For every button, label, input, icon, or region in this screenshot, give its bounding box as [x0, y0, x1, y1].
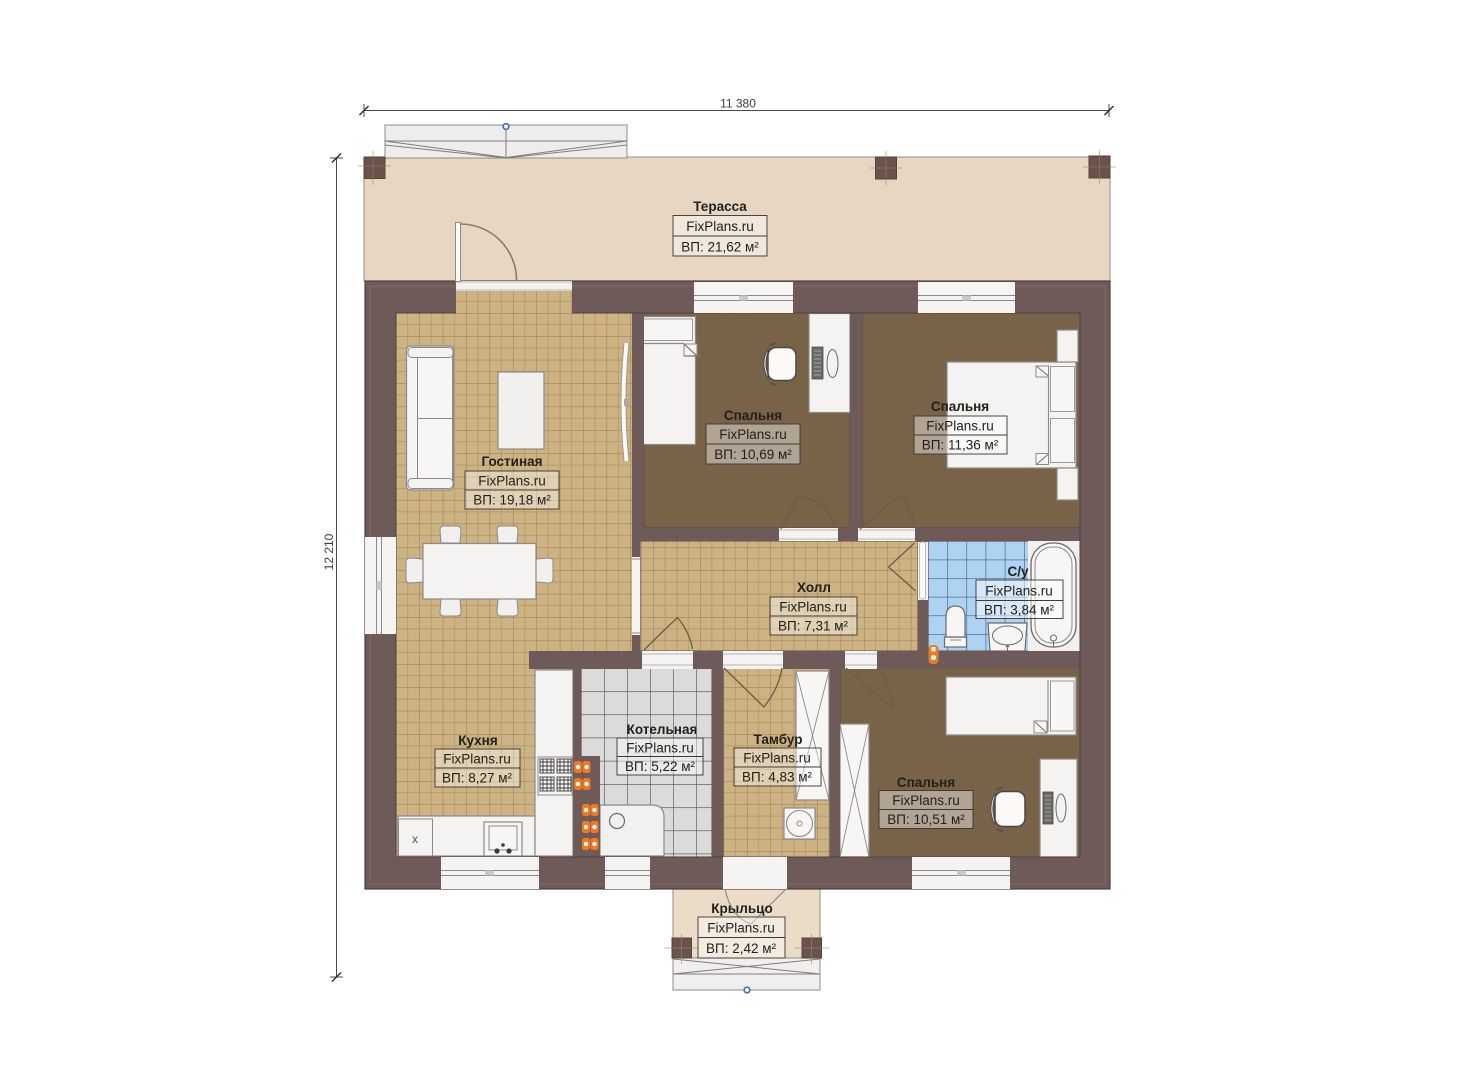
svg-text:ВП: 10,69 м²: ВП: 10,69 м²: [714, 447, 792, 462]
svg-text:Кухня: Кухня: [458, 733, 497, 748]
svg-text:Спальня: Спальня: [931, 399, 989, 414]
svg-text:FixPlans.ru: FixPlans.ru: [926, 419, 994, 434]
svg-text:11 380: 11 380: [720, 97, 756, 111]
svg-text:FixPlans.ru: FixPlans.ru: [686, 219, 754, 234]
svg-text:ВП: 11,36 м²: ВП: 11,36 м²: [922, 438, 999, 453]
svg-text:ВП: 7,31 м²: ВП: 7,31 м²: [778, 619, 849, 634]
svg-text:Спальня: Спальня: [724, 408, 782, 423]
svg-text:Терасса: Терасса: [693, 199, 747, 214]
svg-text:Тамбур: Тамбур: [754, 732, 803, 747]
svg-text:ВП: 21,62 м²: ВП: 21,62 м²: [681, 240, 759, 255]
svg-text:FixPlans.ru: FixPlans.ru: [985, 584, 1053, 599]
svg-text:x: x: [412, 832, 418, 846]
svg-text:FixPlans.ru: FixPlans.ru: [443, 752, 511, 767]
svg-text:Котельная: Котельная: [627, 722, 698, 737]
svg-text:FixPlans.ru: FixPlans.ru: [892, 793, 960, 808]
svg-text:ВП: 3,84 м²: ВП: 3,84 м²: [984, 603, 1055, 618]
svg-text:ВП: 5,22 м²: ВП: 5,22 м²: [625, 759, 696, 774]
svg-text:Холл: Холл: [797, 580, 831, 595]
svg-text:FixPlans.ru: FixPlans.ru: [478, 474, 546, 489]
svg-text:Спальня: Спальня: [897, 775, 955, 790]
svg-text:FixPlans.ru: FixPlans.ru: [779, 600, 847, 615]
svg-text:FixPlans.ru: FixPlans.ru: [719, 427, 787, 442]
svg-text:FixPlans.ru: FixPlans.ru: [707, 921, 775, 936]
svg-text:ВП: 10,51 м²: ВП: 10,51 м²: [887, 812, 965, 827]
svg-text:Крыльцо: Крыльцо: [711, 901, 772, 916]
svg-text:ВП: 4,83 м²: ВП: 4,83 м²: [742, 770, 813, 785]
svg-text:С/у: С/у: [1007, 564, 1029, 579]
svg-text:FixPlans.ru: FixPlans.ru: [626, 741, 694, 756]
svg-text:Гостиная: Гостиная: [481, 454, 542, 469]
svg-text:FixPlans.ru: FixPlans.ru: [743, 751, 811, 766]
svg-text:ВП: 19,18 м²: ВП: 19,18 м²: [473, 493, 551, 508]
svg-text:12 210: 12 210: [322, 533, 336, 570]
svg-text:ВП: 2,42 м²: ВП: 2,42 м²: [706, 941, 777, 956]
svg-text:ВП: 8,27 м²: ВП: 8,27 м²: [442, 771, 513, 786]
